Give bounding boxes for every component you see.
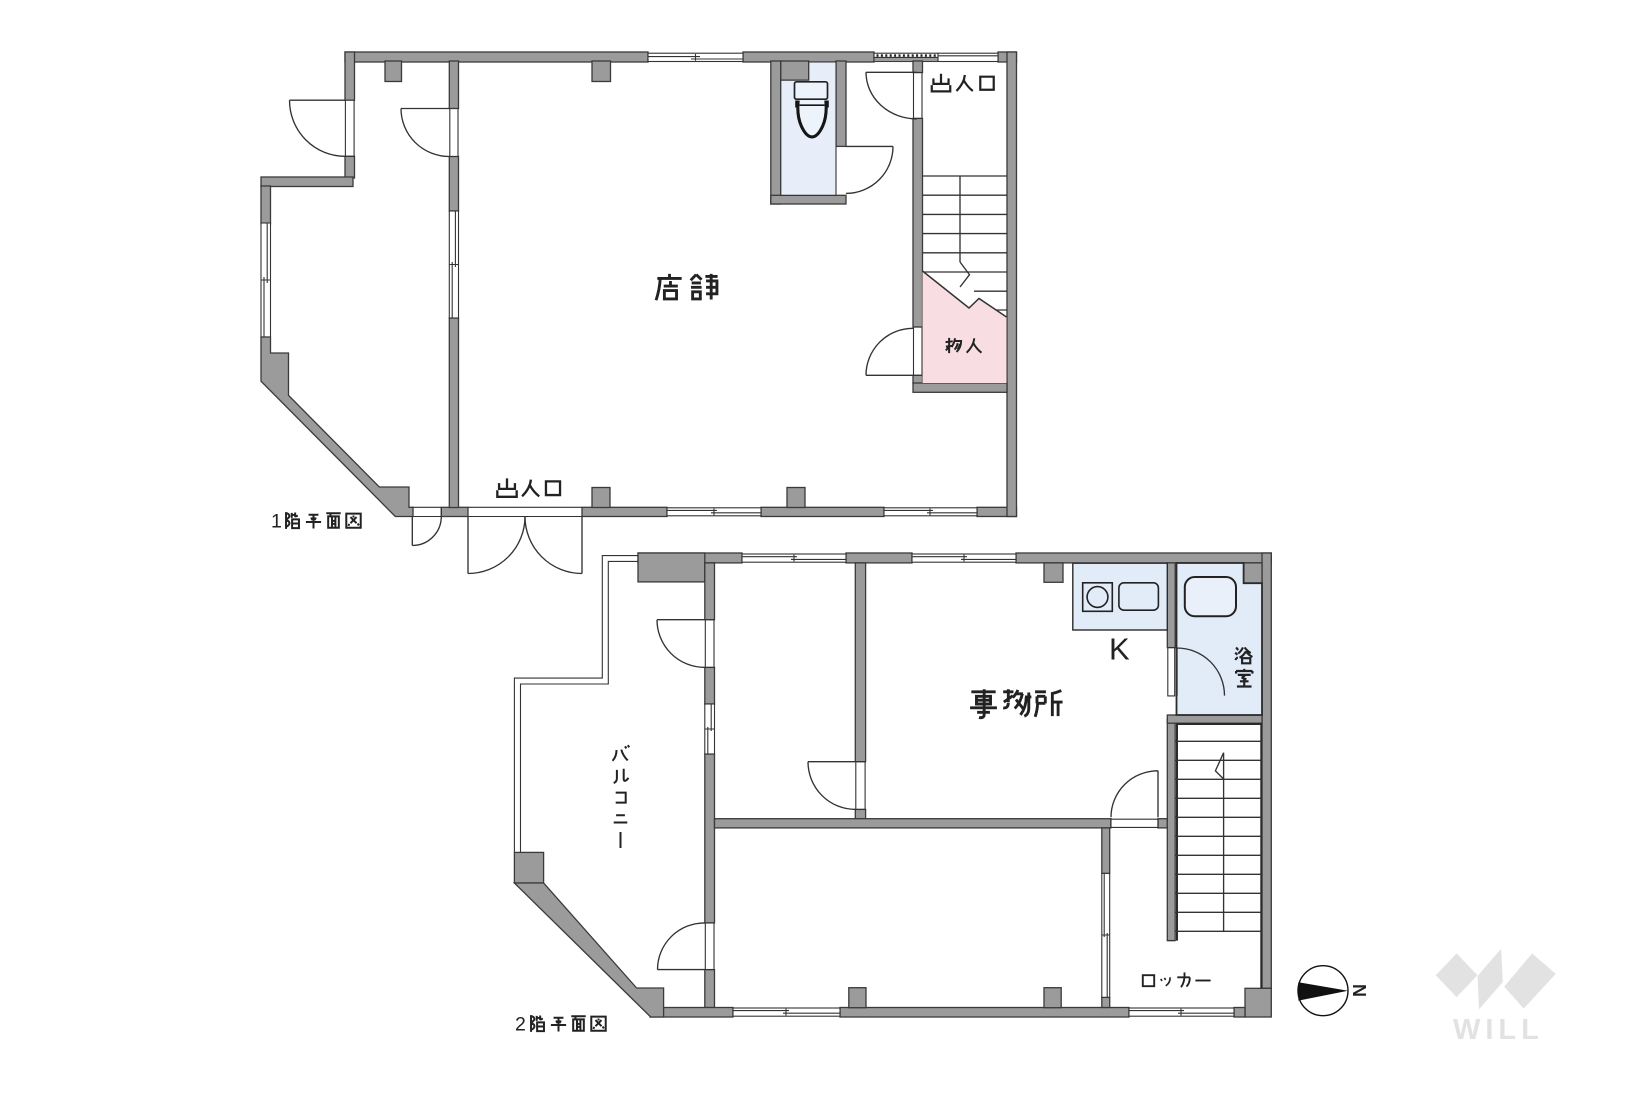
svg-text:2: 2 bbox=[515, 1014, 526, 1036]
svg-text:WILL: WILL bbox=[1453, 1014, 1544, 1046]
svg-text:N: N bbox=[1349, 984, 1369, 997]
svg-text:1: 1 bbox=[271, 511, 282, 533]
svg-text:K: K bbox=[1109, 632, 1130, 667]
